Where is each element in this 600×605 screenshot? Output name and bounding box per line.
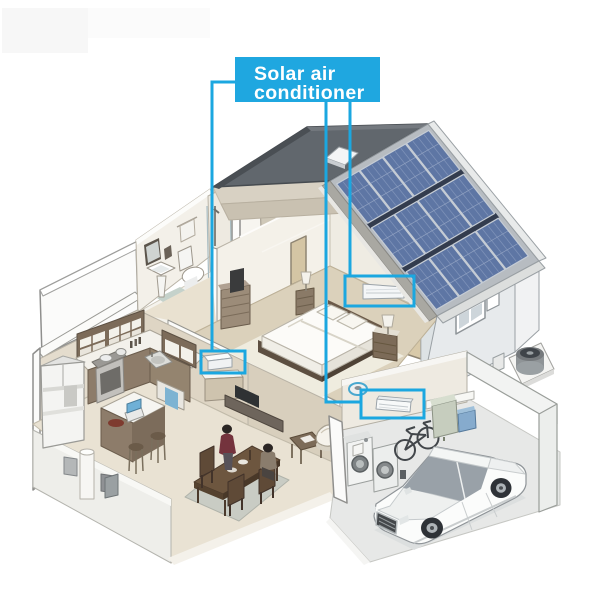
svg-text:conditioner: conditioner: [254, 82, 365, 104]
